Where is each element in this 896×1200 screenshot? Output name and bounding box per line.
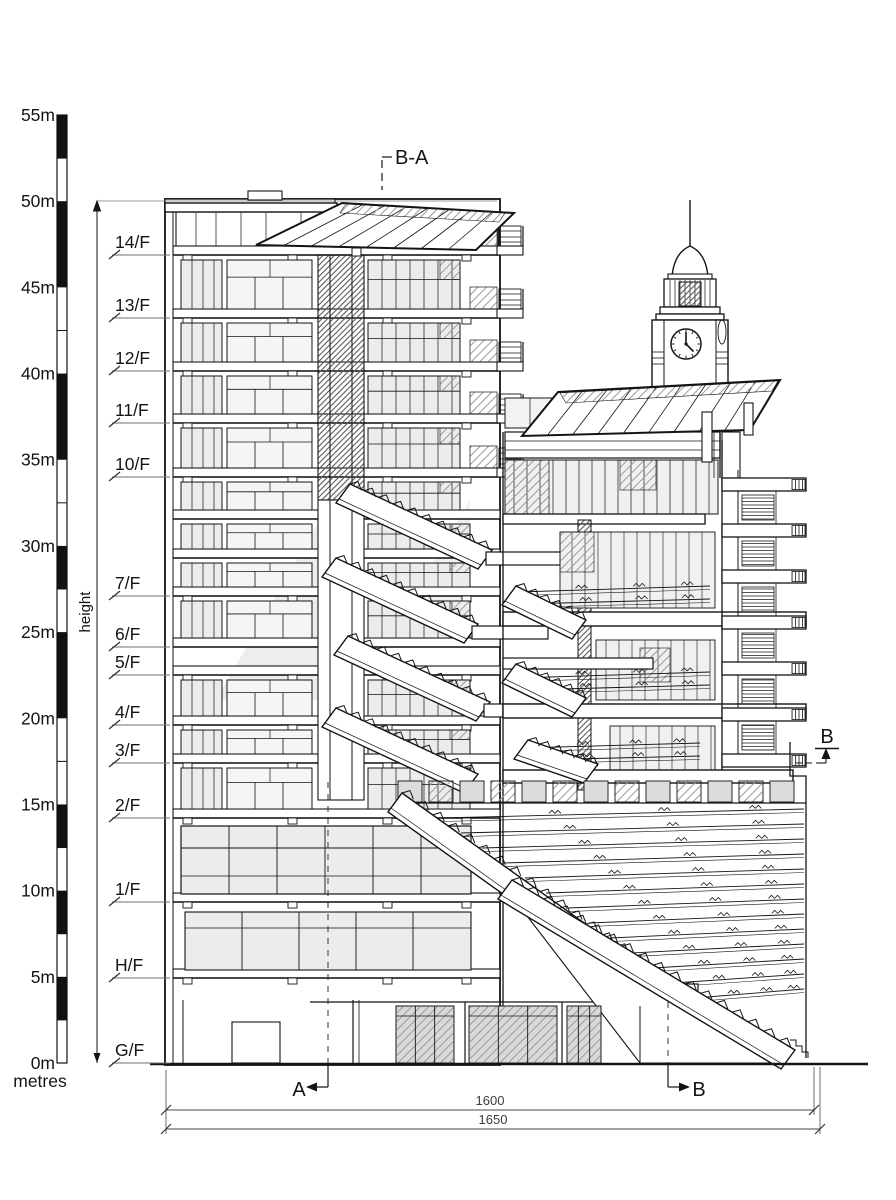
scale-unit-label: metres	[13, 1071, 67, 1091]
scale-tick-label: 40m	[21, 364, 55, 384]
scale-tick-label: 50m	[21, 191, 55, 211]
balcony-stack	[722, 432, 808, 1058]
scale-tick-label: 10m	[21, 881, 55, 901]
floor-label: 2/F	[115, 795, 140, 815]
dimension-inner-value: 1600	[476, 1093, 505, 1108]
floor-label: G/F	[115, 1040, 144, 1060]
floor-label: 12/F	[115, 348, 150, 368]
section-marker-a-label: A	[292, 1079, 306, 1101]
section-drawing-canvas: 55m50m45m40m35m30m25m20m15m10m5m0m 14/F1…	[0, 0, 896, 1200]
floor-label: 5/F	[115, 652, 140, 672]
height-dimension-label: height	[77, 591, 94, 633]
floor-label: 7/F	[115, 573, 140, 593]
scale-tick-label: 15m	[21, 794, 55, 814]
floor-label: 4/F	[115, 702, 140, 722]
floor-label: 13/F	[115, 295, 150, 315]
architectural-section-sheet: 55m50m45m40m35m30m25m20m15m10m5m0m 14/F1…	[0, 0, 896, 1200]
floor-level-lines: 14/F13/F12/F11/F10/F7/F6/F5/F4/F3/F2/F1/…	[109, 232, 170, 1067]
floor-label: 1/F	[115, 879, 140, 899]
section-marker-b-bottom-label: B	[692, 1079, 705, 1101]
tower-section	[165, 191, 600, 1065]
floor-label: 6/F	[115, 624, 140, 644]
scale-tick-label: 5m	[31, 967, 55, 987]
section-marker-b-right-label: B	[820, 726, 833, 748]
scale-tick-label: 55m	[21, 105, 55, 125]
scale-tick-label: 35m	[21, 450, 55, 470]
dimension-outer-value: 1650	[479, 1112, 508, 1127]
section-marker-top-label: B-A	[395, 147, 429, 169]
scale-tick-label: 45m	[21, 277, 55, 297]
metric-scale-bar: 55m50m45m40m35m30m25m20m15m10m5m0m	[21, 105, 67, 1073]
clock-tower	[652, 200, 728, 392]
floor-label: 11/F	[115, 400, 149, 420]
floor-label: 14/F	[115, 232, 150, 252]
scale-tick-label: 25m	[21, 622, 55, 642]
floor-label: 10/F	[115, 454, 150, 474]
floor-label: H/F	[115, 955, 143, 975]
scale-tick-label: 30m	[21, 536, 55, 556]
floor-label: 3/F	[115, 740, 140, 760]
scale-tick-label: 0m	[31, 1053, 55, 1073]
scale-tick-label: 20m	[21, 708, 55, 728]
